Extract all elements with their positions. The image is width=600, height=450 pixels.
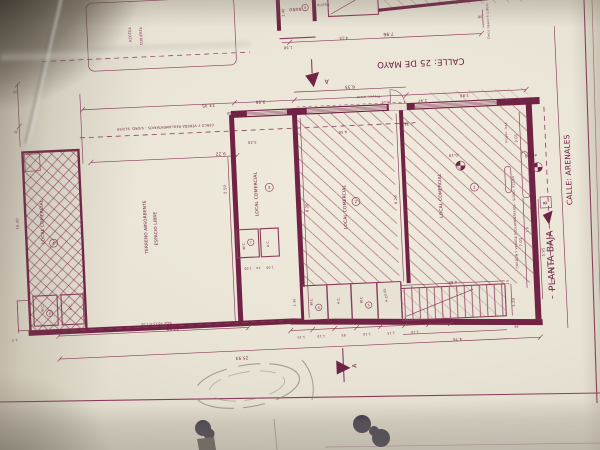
dimension-label: 6.20 <box>394 195 398 204</box>
dimension-label: 4.86 <box>448 280 457 284</box>
dimension-label: 4.30 <box>338 130 347 134</box>
roof-label-b: CUBIERTA <box>139 26 144 45</box>
local-3-number: 3 <box>268 185 271 190</box>
street-label-top: CALLE: 25 DE MAYO <box>377 55 465 69</box>
dimension-label: 23.35 <box>202 103 215 109</box>
photo-marks <box>191 357 390 450</box>
dimension-label: 5.50 <box>223 184 227 193</box>
dimension-label: 9.22 <box>215 151 225 156</box>
level-value: ±0.00 <box>524 153 537 159</box>
dimension-label: 2.40 <box>281 8 285 17</box>
dimension-label: Reja +0.15 h:2.00 <box>141 321 172 326</box>
dimension-label: 3.01 <box>514 134 518 143</box>
ac-label: A.C. <box>266 240 270 247</box>
dimension-label: 7.01 <box>519 237 523 246</box>
stairs <box>401 284 506 321</box>
dimension-label: 1.10 <box>317 334 325 338</box>
wc-label: W.C. <box>359 295 363 303</box>
section-marker-a-bottom: A <box>336 348 360 383</box>
dimension-label: .95 <box>514 324 520 328</box>
dimension-label: 0.15 <box>381 100 390 104</box>
dimension-label: 12.56 <box>166 327 179 333</box>
ac-label: A.C. <box>68 303 72 310</box>
ink-blob <box>372 429 390 447</box>
dimension-label: Proyec. alero <box>357 94 380 99</box>
dimension-label: .10 <box>256 266 262 270</box>
dimension-label: 5.95 <box>541 247 545 256</box>
local-2-hatch <box>297 111 400 286</box>
dimension-label: 1.50 <box>283 45 292 49</box>
open-area-label-1: TERRENO ABSORBENTE <box>142 200 149 255</box>
wc-label: W.C. <box>40 304 44 312</box>
dimension-label: 3.95 <box>255 99 265 104</box>
wc-number: 6 <box>318 306 320 310</box>
dimension-label: .35 <box>14 130 20 134</box>
dimension-label: 2.47 <box>418 98 427 102</box>
dimension-label: Cerco opaco h:1.80m <box>485 3 491 39</box>
dimension-label: 1.30 <box>292 298 296 306</box>
dimension-label: 3.05 <box>383 288 387 296</box>
upper-stairs <box>327 0 378 16</box>
ac-room <box>260 228 279 257</box>
bath-label: BAÑO <box>289 7 302 13</box>
dimension-label: 6.35 <box>344 84 354 89</box>
street-label-right: CALLE: ARENALES <box>562 134 574 205</box>
dimension-label: 1.15 <box>387 331 395 335</box>
dimension-label: 1.15 <box>297 335 305 339</box>
dimension-label: 1.00 <box>244 266 252 270</box>
wc-label: W.C. <box>242 242 246 250</box>
dimension-label: CERCO Y VEREDA REGLAMENTARIOS - S/ORD. 9… <box>117 123 214 131</box>
local-4-number: 4 <box>52 241 55 246</box>
dimension-label: 4.15 <box>339 36 348 40</box>
plan-tilt-group: A A B -0.10 ±0.00 CALLE: 25 DE MAYO CALL… <box>0 0 582 397</box>
dimension-label: 1.3 <box>12 338 18 342</box>
section-letter: B <box>543 201 549 205</box>
dimension-label: 7.0 <box>525 227 529 233</box>
section-marker-a-top: A <box>305 59 329 88</box>
section-letter: A <box>351 363 358 368</box>
dimension-label: 3.20 <box>247 140 256 144</box>
dimension-label: 25.93 <box>235 355 248 361</box>
dimension-label: 2.34 <box>404 122 413 126</box>
dimension-label: 1.00 <box>266 265 274 269</box>
section-marker-b: B <box>540 197 553 226</box>
dimension-label: 16.30 <box>15 218 20 230</box>
plan-title: PLANTA BAJA <box>545 230 558 292</box>
level-value: -0.10 <box>448 153 459 159</box>
wc-number: 8 <box>49 312 51 316</box>
dimension-label: .30 <box>478 14 484 18</box>
door-swing-arc <box>390 89 405 104</box>
wc-label: W.C. <box>309 298 313 306</box>
dimension-label: 1.00 <box>227 111 236 115</box>
dimension-label: .35 <box>13 90 19 94</box>
dimension-label: 1.10 <box>411 330 419 334</box>
dimension-label: .15 <box>506 280 510 286</box>
section-letter: A <box>324 78 329 85</box>
blueprint-photo: A A B -0.10 ±0.00 CALLE: 25 DE MAYO CALL… <box>0 0 600 450</box>
dimension-label: 2.89 <box>459 93 468 97</box>
bath-number: 9 <box>304 6 306 10</box>
dimension-label: 4.76 <box>452 337 461 341</box>
roof-label-a: AZOTEA <box>128 26 133 42</box>
wc-number: 5 <box>368 303 370 307</box>
wc-number: 7 <box>250 241 252 245</box>
local-4-block <box>10 150 86 333</box>
door-opening <box>389 103 407 110</box>
local-1-number: 1 <box>473 185 476 190</box>
pencil-line <box>274 419 277 450</box>
ink-blobs <box>195 415 390 447</box>
local-2-number: 2 <box>355 199 358 204</box>
hall-label: Pasillo <box>317 2 329 7</box>
dimension-label: 8.20 <box>305 203 309 212</box>
shadow-notch <box>197 437 216 450</box>
open-area-label-2: ESPACIO LIBRE <box>152 211 159 245</box>
dimension-label: .95 <box>341 333 347 337</box>
round-stamp <box>191 357 313 415</box>
dimension-label: 7.96 <box>383 31 394 37</box>
ink-blob <box>353 415 371 433</box>
dimension-label: 1.20 <box>512 297 516 306</box>
ac-label: A.C. <box>336 297 340 304</box>
dimension-label: 1.10 <box>363 332 371 336</box>
floor-plan-drawing: A A B -0.10 ±0.00 CALLE: 25 DE MAYO CALL… <box>0 0 600 450</box>
local-3-label: LOCAL COMERCIAL <box>253 171 261 216</box>
